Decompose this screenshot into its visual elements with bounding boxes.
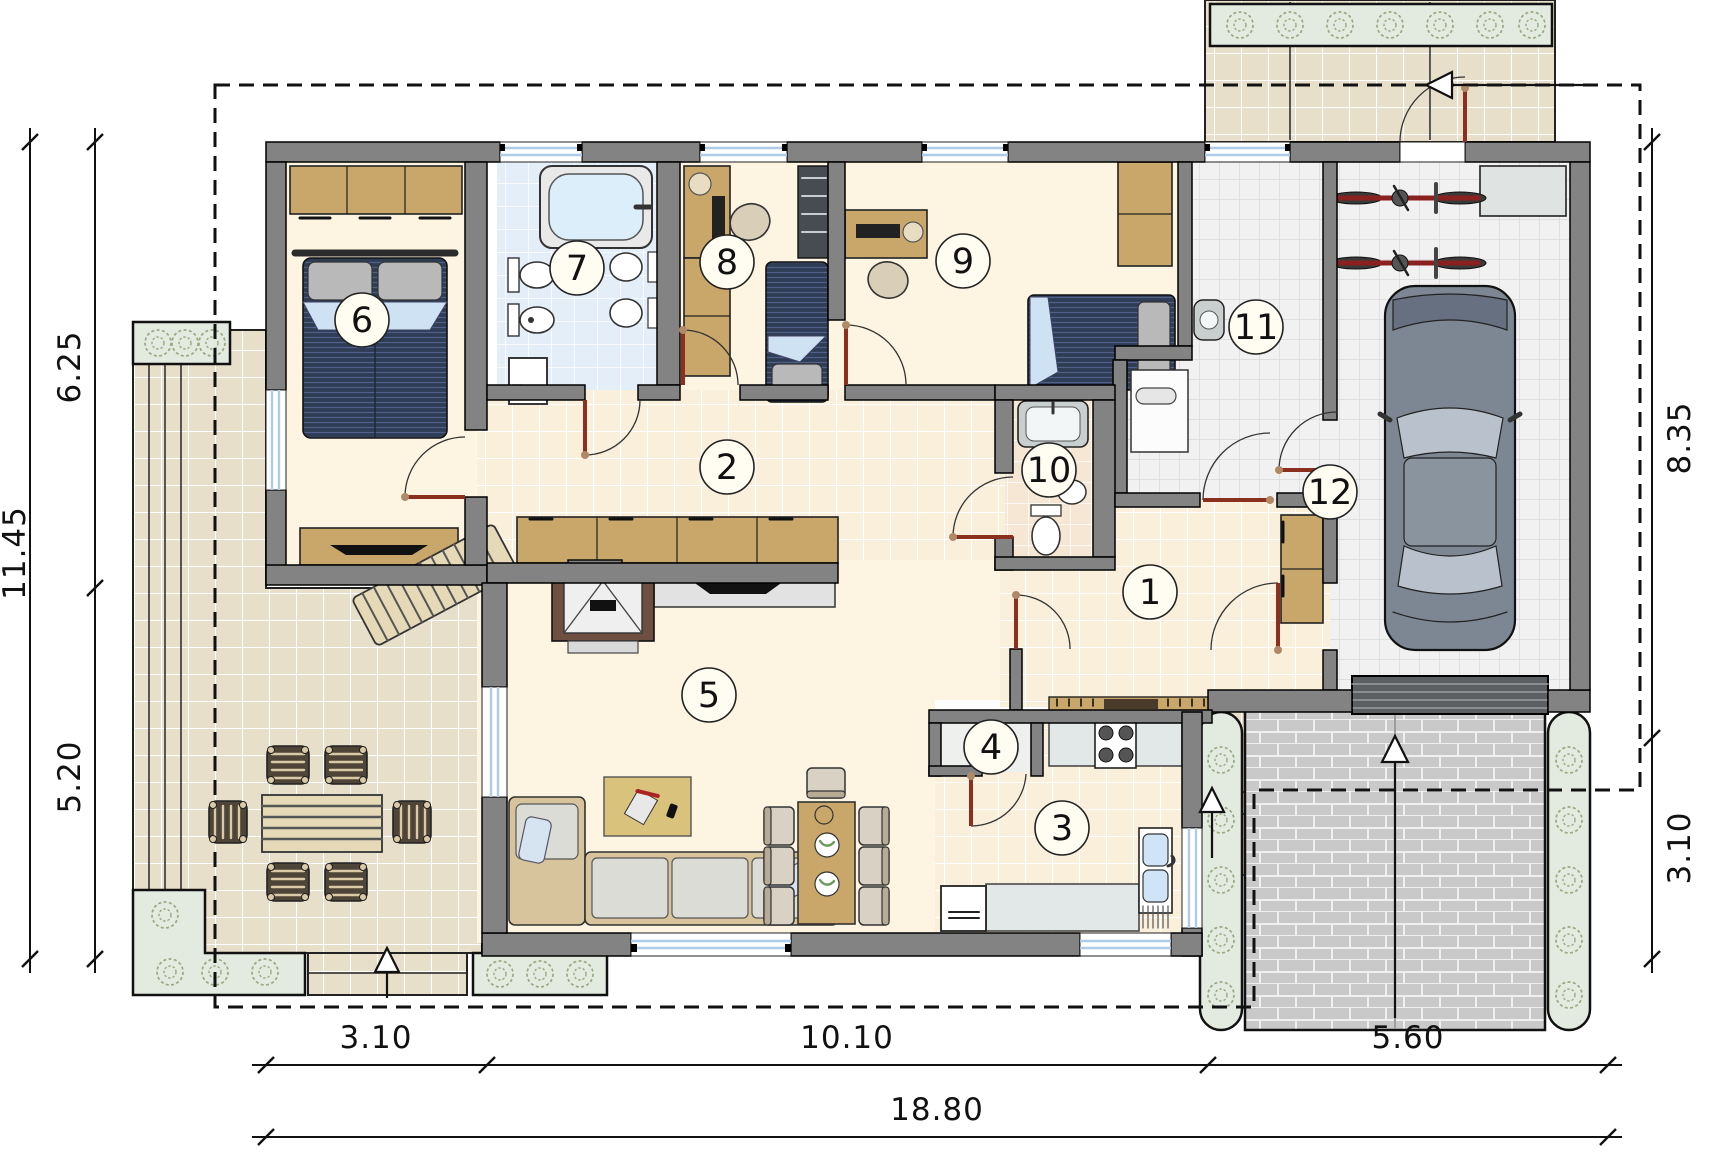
dim-bottom-house: 10.10 [800, 1020, 894, 1056]
dim-right-lower: 3.10 [1662, 811, 1698, 884]
window-west-bedroom6 [266, 390, 286, 490]
svg-text:8: 8 [716, 243, 738, 283]
car-roof [1404, 458, 1496, 546]
dim-bottom-terrace: 3.10 [339, 1020, 412, 1056]
dim-left-lower: 5.20 [52, 740, 88, 813]
toilet [520, 262, 554, 288]
toilet-tank [508, 258, 519, 292]
utility-table [1131, 370, 1188, 452]
outdoor-table [262, 795, 382, 852]
room-label-4: 4 [964, 720, 1018, 774]
dim-bottom-total: 18.80 [890, 1092, 984, 1128]
fan [903, 222, 923, 242]
window-east-kitchen [1182, 828, 1202, 928]
toilet [1032, 517, 1060, 555]
windshield [1397, 408, 1503, 458]
room-label-6: 6 [335, 293, 389, 347]
toilet-tank [1031, 505, 1061, 516]
svg-text:12: 12 [1308, 473, 1353, 513]
svg-text:7: 7 [566, 249, 588, 289]
sink-bowl [1143, 834, 1168, 866]
room-label-11: 11 [1229, 300, 1283, 354]
svg-text:11: 11 [1234, 308, 1279, 348]
dining-table [798, 802, 855, 924]
svg-text:3: 3 [1051, 809, 1073, 849]
wardrobe [290, 166, 462, 214]
room-label-12: 12 [1303, 465, 1357, 519]
room-label-8: 8 [700, 235, 754, 289]
window-north-bath [500, 142, 582, 162]
car [1380, 286, 1520, 650]
svg-text:10: 10 [1027, 451, 1072, 491]
counter-south [986, 884, 1139, 931]
floor-plan-drawing: 1 2 3 4 5 6 7 8 9 10 11 12 [0, 0, 1721, 1153]
svg-text:5: 5 [698, 676, 720, 716]
window-north-bedroom8 [700, 142, 787, 162]
dim-left-upper: 6.25 [52, 330, 88, 403]
basin [610, 253, 642, 281]
svg-text:4: 4 [980, 728, 1002, 768]
outdoor-chair [209, 801, 247, 843]
outdoor-chair [267, 746, 309, 784]
window-north-utility [1205, 142, 1290, 162]
outdoor-chair [267, 863, 309, 901]
planter-north-walkway [1210, 4, 1552, 46]
outdoor-chair [393, 801, 431, 843]
planter-driveway-right [1548, 712, 1590, 1030]
outdoor-chair [325, 746, 367, 784]
fan [689, 173, 711, 195]
window-west-living [482, 687, 507, 797]
outdoor-chair [325, 863, 367, 901]
room-label-2: 2 [700, 440, 754, 494]
wardrobe-dark [798, 166, 830, 258]
planter-driveway-left [1200, 712, 1242, 1030]
bidet [520, 307, 554, 333]
fridge [941, 886, 986, 931]
hearth [568, 641, 638, 653]
floor-plan-canvas: 1 2 3 4 5 6 7 8 9 10 11 12 [0, 0, 1721, 1153]
pillow [378, 262, 442, 300]
svg-text:2: 2 [716, 448, 738, 488]
window-north-bedroom9 [922, 142, 1008, 162]
svg-text:9: 9 [952, 242, 974, 282]
workbench [1480, 166, 1566, 216]
iron [1136, 388, 1176, 404]
sink-bowl [1143, 870, 1168, 902]
svg-text:6: 6 [351, 301, 373, 341]
room-label-5: 5 [682, 668, 736, 722]
keyboard [856, 224, 900, 238]
dim-right-upper: 8.35 [1662, 401, 1698, 474]
tv [330, 545, 428, 555]
window-south-living [631, 933, 791, 956]
room-label-1: 1 [1123, 565, 1177, 619]
bidet-tank [508, 304, 519, 336]
svg-text:1: 1 [1139, 573, 1161, 613]
window-south-kitchen [1080, 933, 1171, 956]
room-label-3: 3 [1035, 801, 1089, 855]
dim-left-total: 11.45 [0, 506, 33, 600]
planter-south-living [473, 953, 607, 995]
room-label-9: 9 [936, 234, 990, 288]
room-label-7: 7 [550, 241, 604, 295]
room-label-10: 10 [1022, 443, 1076, 497]
basin [610, 299, 642, 327]
dim-bottom-garage: 5.60 [1371, 1020, 1444, 1056]
